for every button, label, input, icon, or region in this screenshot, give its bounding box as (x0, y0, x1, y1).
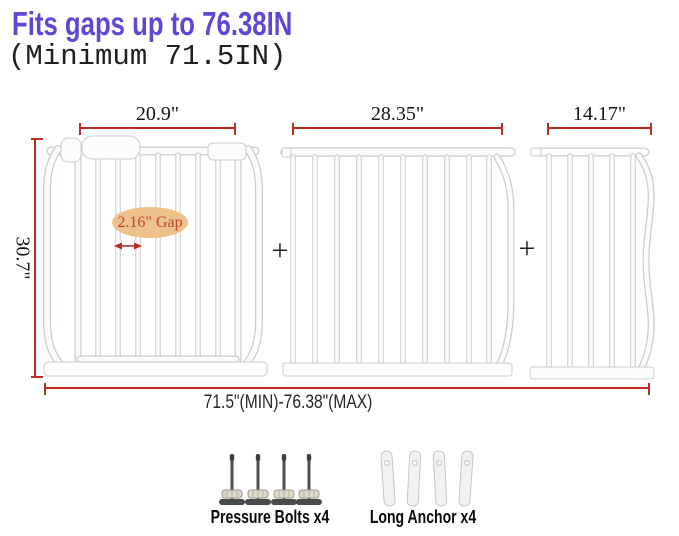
product-dimension-diagram: Fits gaps up to 76.38IN (Minimum 71.5IN)… (0, 0, 679, 536)
extension-panel-narrow-illustration (530, 148, 654, 379)
extension-narrow-base-bar (530, 367, 654, 379)
extension-panel-wide-illustration (282, 148, 512, 376)
extension-narrow-width-label: 14.17" (547, 103, 652, 126)
plus-sign: + (512, 232, 542, 266)
sub-headline: (Minimum 71.5IN) (8, 40, 286, 73)
gate-base-bar (44, 362, 267, 376)
extension-narrow-width-dimension: 14.17" (547, 103, 652, 129)
wall-anchor-icon (407, 451, 421, 507)
bar-gap-label: 2.16" Gap (117, 214, 182, 232)
extension-wide-base-bar (283, 363, 512, 376)
long-anchors-illustration (381, 451, 474, 507)
dimension-line (79, 127, 236, 129)
walk-through-gate-illustration (44, 136, 267, 376)
dimension-line (44, 387, 650, 389)
plus-sign: + (265, 234, 295, 268)
pressure-bolt-icon (245, 454, 271, 505)
long-anchor-label: Long Anchor x4 (360, 507, 486, 528)
wall-anchor-icon (433, 451, 447, 507)
dimension-line (34, 138, 36, 378)
gate-width-dimension: 20.9" (79, 103, 236, 129)
total-width-dimension: 71.5"(MIN)-76.38"(MAX) (44, 387, 650, 389)
extension-wide-width-dimension: 28.35" (292, 103, 503, 129)
bar-gap-callout: 2.16" Gap (112, 207, 188, 238)
wall-anchor-icon (381, 451, 396, 507)
pressure-bolts-label: Pressure Bolts x4 (207, 507, 333, 528)
gate-width-label: 20.9" (79, 103, 236, 126)
wall-anchor-icon (459, 451, 474, 507)
pressure-bolt-icon (271, 454, 297, 505)
gate-illustration (0, 0, 679, 536)
gate-handle (82, 136, 140, 159)
gate-height-label: 30.7" (11, 228, 34, 288)
pressure-bolts-illustration (219, 454, 322, 505)
headline: Fits gaps up to 76.38IN (12, 5, 292, 43)
pressure-bolt-icon (296, 454, 322, 505)
dimension-line (292, 127, 503, 129)
gate-latch (208, 143, 246, 160)
dimension-line (547, 127, 652, 129)
extension-wide-width-label: 28.35" (292, 103, 503, 126)
pressure-bolt-icon (219, 454, 245, 505)
gate-hinge-knob (61, 138, 81, 162)
total-width-range-label: 71.5"(MIN)-76.38"(MAX) (194, 392, 383, 414)
